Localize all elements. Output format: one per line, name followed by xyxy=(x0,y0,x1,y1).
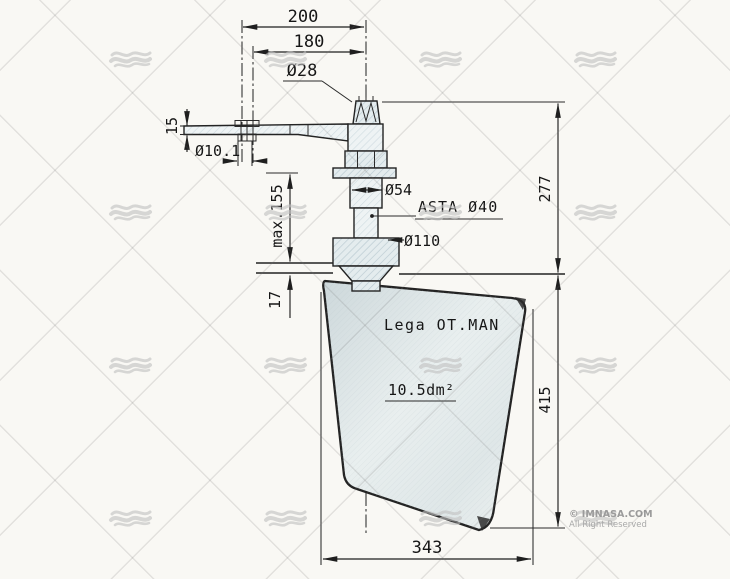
wave-icon xyxy=(111,206,150,219)
watermark-credit: © IMNASA.COM All Right Reserved xyxy=(569,509,653,530)
wave-icon xyxy=(266,512,305,525)
dia-10-1-label: Ø10.1 xyxy=(195,142,240,160)
wave-icon xyxy=(266,359,305,372)
wave-icon xyxy=(421,53,460,66)
dia-110-label: Ø110 xyxy=(404,232,440,250)
height-277-label: 277 xyxy=(536,175,554,202)
tiller-head-block xyxy=(348,124,383,151)
blade-material-label: Lega OT.MAN xyxy=(384,316,500,334)
drawing-page: 200 180 Ø28 15 Ø10.1 max.155 17 277 Ø54 xyxy=(0,0,730,579)
tiller-arm xyxy=(184,120,348,141)
flange-washer xyxy=(333,168,396,178)
height-415-label: 415 xyxy=(536,386,554,413)
blade-area-label: 10.5dm² xyxy=(388,381,455,399)
width-343-label: 343 xyxy=(412,538,443,558)
wave-icon xyxy=(111,359,150,372)
dia-54-label: Ø54 xyxy=(385,181,412,199)
cone-lower xyxy=(339,266,393,281)
wave-icon xyxy=(421,512,460,525)
wave-icon xyxy=(576,206,615,219)
watermark-rights: All Right Reserved xyxy=(569,520,647,530)
rudder-technical-drawing: 200 180 Ø28 15 Ø10.1 max.155 17 277 Ø54 xyxy=(0,0,730,579)
wave-icon xyxy=(111,512,150,525)
gap-17-label: 17 xyxy=(266,291,284,309)
wave-icon xyxy=(576,53,615,66)
wave-icon xyxy=(576,359,615,372)
hex-nut xyxy=(345,151,387,168)
thickness-15-label: 15 xyxy=(163,117,181,135)
wave-icon xyxy=(111,53,150,66)
collar-110 xyxy=(333,238,399,266)
watermark-copyright: © IMNASA.COM xyxy=(569,509,653,520)
hull-lines xyxy=(256,263,565,274)
dim-180-label: 180 xyxy=(294,32,325,52)
shaft-lower-40 xyxy=(354,208,378,238)
wave-icon xyxy=(266,53,305,66)
blade-neck xyxy=(352,281,380,291)
dim-200-label: 200 xyxy=(288,7,319,27)
shaft-upper-54 xyxy=(350,178,382,208)
